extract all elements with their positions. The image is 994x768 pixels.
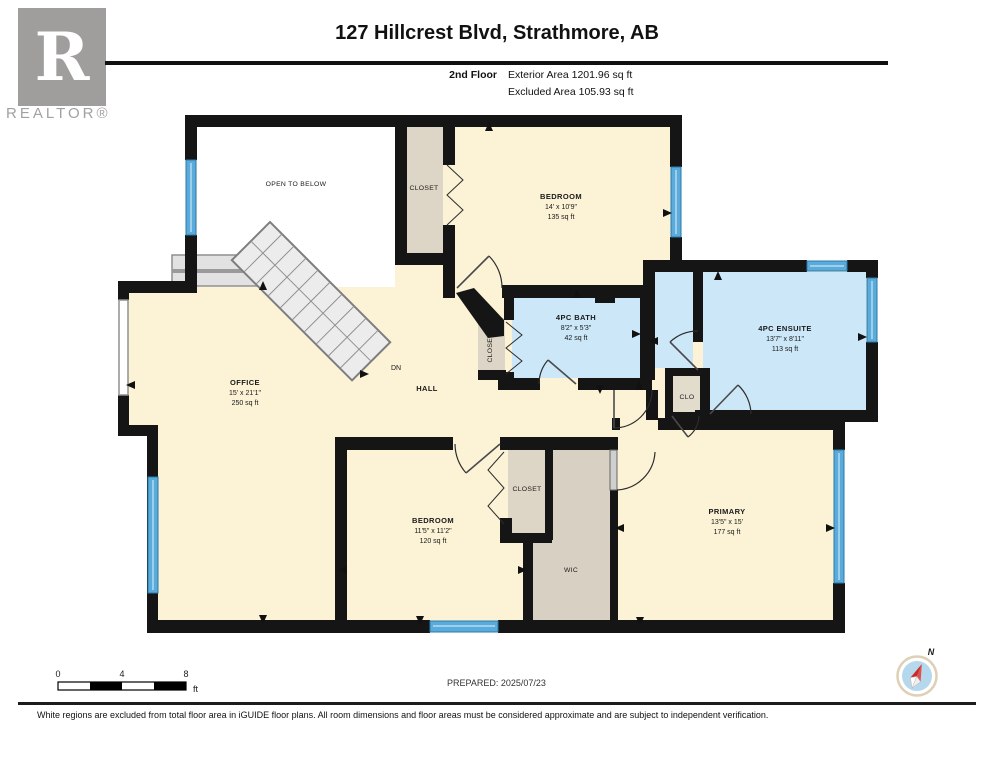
window-icon bbox=[671, 167, 681, 237]
footer-divider bbox=[18, 702, 976, 705]
svg-text:14' x 10'9": 14' x 10'9" bbox=[545, 204, 578, 211]
window-opening-icon bbox=[119, 300, 128, 395]
window-icon bbox=[148, 477, 158, 593]
floorplan-page: R REALTOR® 127 Hillcrest Blvd, Strathmor… bbox=[0, 0, 994, 768]
label-bedroom-bottom: BEDROOM bbox=[412, 516, 454, 525]
disclaimer-text: White regions are excluded from total fl… bbox=[37, 710, 957, 720]
window-icon bbox=[430, 621, 498, 632]
label-bedroom-top: BEDROOM bbox=[540, 192, 582, 201]
scale-unit: ft bbox=[193, 684, 199, 694]
scale-bar: 0 4 8 ft bbox=[55, 669, 198, 694]
svg-text:120 sq ft: 120 sq ft bbox=[420, 538, 447, 545]
label-open-to-below: OPEN TO BELOW bbox=[266, 181, 327, 188]
label-closet-mid: CLOSET bbox=[487, 334, 494, 363]
door-leaf bbox=[610, 450, 617, 490]
label-bath: 4PC BATH bbox=[556, 313, 596, 322]
label-office: OFFICE bbox=[230, 378, 260, 387]
label-ensuite: 4PC ENSUITE bbox=[758, 324, 812, 333]
scale-tick-0: 0 bbox=[55, 669, 60, 679]
scale-tick-4: 4 bbox=[119, 669, 124, 679]
label-hall: HALL bbox=[416, 384, 438, 393]
svg-text:15' x 21'1": 15' x 21'1" bbox=[229, 390, 262, 397]
label-primary: PRIMARY bbox=[708, 507, 745, 516]
svg-text:11'5" x 11'2": 11'5" x 11'2" bbox=[414, 528, 452, 535]
compass-north-label: N bbox=[928, 647, 935, 657]
scale-tick-8: 8 bbox=[183, 669, 188, 679]
svg-text:8'2" x 5'3": 8'2" x 5'3" bbox=[561, 325, 592, 332]
svg-text:135 sq ft: 135 sq ft bbox=[548, 214, 575, 221]
label-closet-top: CLOSET bbox=[410, 185, 439, 192]
svg-text:13'7" x 8'11": 13'7" x 8'11" bbox=[766, 336, 804, 343]
window-icon bbox=[807, 261, 847, 271]
floor-plan-svg: OPEN TO BELOW CLOSET BEDROOM 14' x 10'9"… bbox=[0, 0, 994, 768]
compass-icon: N bbox=[898, 647, 937, 696]
svg-text:13'5" x 15': 13'5" x 15' bbox=[711, 519, 743, 526]
window-icon bbox=[186, 160, 196, 235]
svg-text:250 sq ft: 250 sq ft bbox=[232, 400, 259, 407]
svg-text:113 sq ft: 113 sq ft bbox=[772, 346, 798, 353]
svg-text:42 sq ft: 42 sq ft bbox=[565, 335, 588, 342]
window-icon bbox=[834, 450, 844, 583]
svg-text:177 sq ft: 177 sq ft bbox=[714, 529, 741, 536]
window-icon bbox=[867, 278, 877, 342]
room-ensuite-wc bbox=[655, 272, 693, 368]
label-closet-bottom: CLOSET bbox=[513, 486, 542, 493]
label-wic: WIC bbox=[564, 567, 578, 574]
label-stairs-dn: DN bbox=[391, 365, 401, 372]
prepared-date: PREPARED: 2025/07/23 bbox=[447, 678, 546, 688]
label-clo: CLO bbox=[680, 394, 695, 401]
